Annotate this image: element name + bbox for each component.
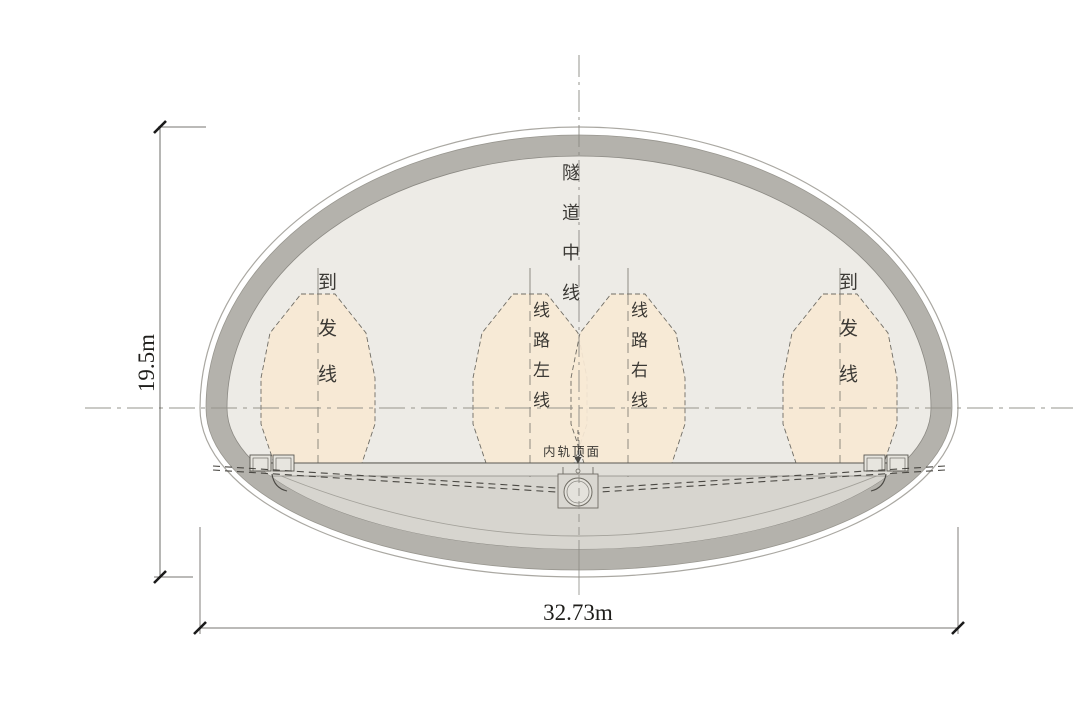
- center-drain-pipe: [564, 478, 592, 506]
- tunnel-cross-section-diagram: 隧道中线 到发线 线路左线 线路右线 到发线 内轨顶面 19.5m 32.73m: [0, 0, 1085, 711]
- tunnel-centerline-label: 隧道中线: [557, 163, 583, 323]
- height-dimension-text: 19.5m: [134, 323, 160, 403]
- arrival-departure-track-left-label: 到发线: [312, 272, 339, 410]
- inner-rail-top-label: 内轨顶面: [543, 441, 601, 460]
- line-left-label: 线路左线: [527, 301, 552, 421]
- line-right-label: 线路右线: [625, 301, 650, 421]
- arrival-departure-track-right-label: 到发线: [833, 272, 860, 410]
- height-dimension: [154, 121, 206, 583]
- width-dimension-text: 32.73m: [518, 600, 638, 626]
